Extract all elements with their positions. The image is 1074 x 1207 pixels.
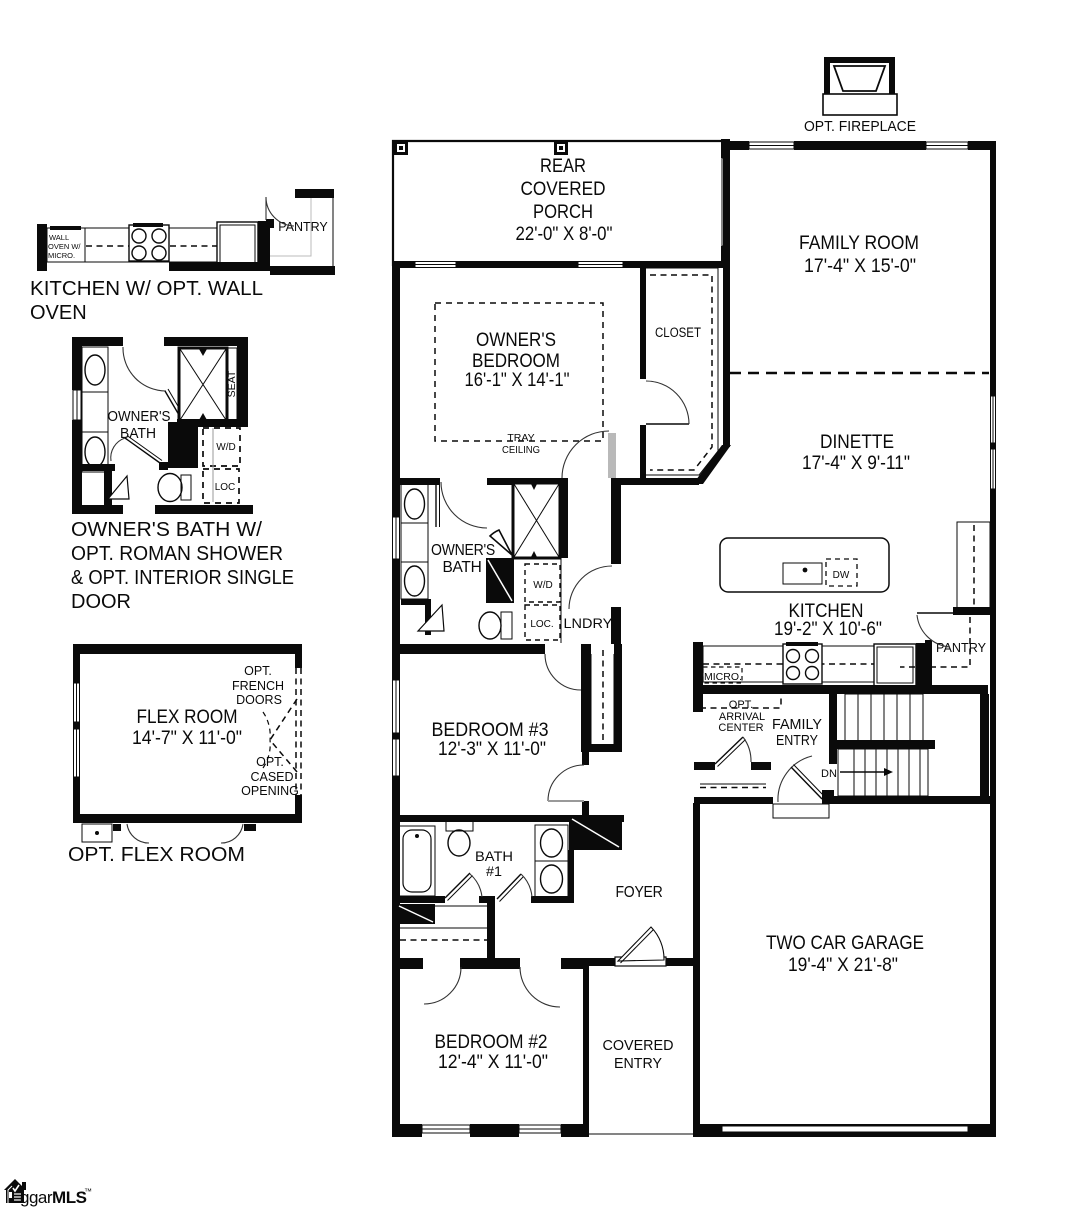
svg-text:LNDRY.: LNDRY.	[564, 616, 615, 631]
svg-text:PORCH: PORCH	[533, 201, 593, 223]
svg-text:BEDROOM #2: BEDROOM #2	[435, 1031, 548, 1053]
svg-text:PANTRY: PANTRY	[936, 641, 987, 655]
svg-text:DOOR: DOOR	[71, 591, 131, 613]
svg-text:OPT.: OPT.	[729, 699, 753, 711]
svg-text:OPT.: OPT.	[256, 755, 284, 769]
svg-text:OWNER'S: OWNER'S	[108, 408, 171, 425]
svg-text:FLEX ROOM: FLEX ROOM	[137, 706, 238, 728]
svg-text:DOORS: DOORS	[236, 693, 282, 707]
svg-text:DINETTE: DINETTE	[820, 431, 894, 453]
svg-text:DW: DW	[833, 570, 850, 581]
svg-text:17'-4" X 9'-11": 17'-4" X 9'-11"	[802, 452, 910, 474]
svg-text:14'-7" X 11'-0": 14'-7" X 11'-0"	[132, 727, 242, 749]
svg-text:DN: DN	[821, 768, 837, 780]
svg-text:TWO CAR GARAGE: TWO CAR GARAGE	[766, 932, 924, 954]
svg-text:OPT. FLEX ROOM: OPT. FLEX ROOM	[68, 844, 245, 866]
svg-text:COVERED: COVERED	[521, 178, 606, 200]
svg-text:16'-1" X 14'-1": 16'-1" X 14'-1"	[465, 369, 570, 391]
svg-text:OPT.: OPT.	[244, 664, 272, 678]
svg-text:™: ™	[84, 1187, 92, 1196]
svg-text:FOYER: FOYER	[616, 884, 663, 901]
svg-text:OVEN: OVEN	[30, 302, 87, 324]
svg-text:SEAT: SEAT	[226, 370, 238, 397]
svg-text:FAMILY ROOM: FAMILY ROOM	[799, 232, 919, 254]
svg-text:OWNER'S BATH W/: OWNER'S BATH W/	[71, 519, 262, 541]
svg-text:WALL: WALL	[49, 233, 69, 242]
svg-text:MICRO.: MICRO.	[48, 251, 75, 260]
svg-text:TRAY: TRAY	[507, 432, 534, 444]
svg-text:12'-3" X 11'-0": 12'-3" X 11'-0"	[438, 738, 546, 760]
svg-text:COVERED: COVERED	[603, 1037, 674, 1054]
svg-text:17'-4" X 15'-0": 17'-4" X 15'-0"	[804, 255, 916, 277]
svg-text:OPT. ROMAN SHOWER: OPT. ROMAN SHOWER	[71, 543, 283, 565]
svg-text:CENTER: CENTER	[718, 722, 763, 734]
svg-text:W/D: W/D	[533, 580, 552, 591]
svg-text:LOC.: LOC.	[530, 619, 553, 630]
svg-text:OWNER'S: OWNER'S	[431, 542, 495, 559]
svg-text:& OPT. INTERIOR SINGLE: & OPT. INTERIOR SINGLE	[71, 567, 294, 589]
svg-text:ENTRY: ENTRY	[614, 1055, 662, 1072]
svg-text:ENTRY: ENTRY	[776, 732, 818, 749]
svg-text:ggarMLS: ggarMLS	[20, 1188, 87, 1207]
svg-text:OWNER'S: OWNER'S	[476, 329, 556, 351]
svg-text:BATH: BATH	[443, 559, 482, 576]
svg-text:OVEN W/: OVEN W/	[48, 242, 81, 251]
svg-text:BATH: BATH	[120, 425, 156, 442]
svg-text:22'-0" X 8'-0": 22'-0" X 8'-0"	[516, 223, 613, 245]
svg-text:CASED: CASED	[250, 770, 293, 784]
svg-text:OPENING: OPENING	[241, 784, 299, 798]
svg-text:#1: #1	[486, 864, 502, 879]
svg-text:FAMILY: FAMILY	[772, 716, 822, 733]
svg-text:BATH: BATH	[475, 849, 513, 864]
svg-text:REAR: REAR	[540, 155, 586, 177]
svg-text:19'-4" X 21'-8": 19'-4" X 21'-8"	[788, 954, 898, 976]
svg-text:CEILING: CEILING	[502, 444, 540, 456]
svg-text:OPT. FIREPLACE: OPT. FIREPLACE	[804, 118, 916, 135]
svg-text:KITCHEN W/ OPT. WALL: KITCHEN W/ OPT. WALL	[30, 278, 263, 300]
svg-text:19'-2" X 10'-6": 19'-2" X 10'-6"	[774, 618, 882, 640]
svg-text:FRENCH: FRENCH	[232, 679, 284, 693]
svg-text:W/D: W/D	[216, 442, 235, 453]
svg-text:MICRO.: MICRO.	[704, 671, 742, 683]
svg-text:12'-4" X 11'-0": 12'-4" X 11'-0"	[438, 1051, 548, 1073]
svg-text:PANTRY: PANTRY	[278, 220, 328, 234]
svg-text:LOC: LOC	[215, 482, 236, 493]
svg-text:CLOSET: CLOSET	[655, 325, 701, 340]
